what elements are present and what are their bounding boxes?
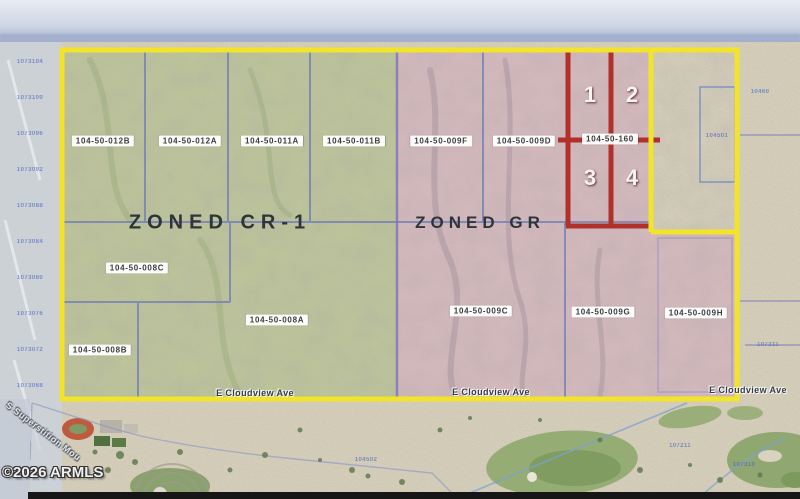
- map-number: 10460: [751, 89, 770, 95]
- map-number: 1073088: [17, 203, 43, 209]
- map-number: 107211: [669, 443, 691, 449]
- red-lot-number: 2: [626, 82, 638, 108]
- parcel-label: 104-50-009D: [493, 136, 555, 147]
- red-lot-number: 4: [626, 165, 638, 191]
- map-number: 104502: [355, 457, 377, 463]
- street-label-cloudview: E Cloudview Ave: [216, 388, 294, 398]
- street-label-cloudview: E Cloudview Ave: [709, 385, 787, 395]
- street-label-cloudview: E Cloudview Ave: [452, 387, 530, 397]
- zoning-map: ZONED CR-1 ZONED GR 104-50-012B 104-50-0…: [0, 0, 800, 499]
- map-number: 107310: [733, 462, 755, 468]
- map-canvas[interactable]: [0, 0, 800, 499]
- parcel-label: 104-50-009C: [450, 306, 512, 317]
- parcel-label: 104-50-009F: [410, 136, 472, 147]
- map-number: 1073092: [17, 167, 43, 173]
- zone-label-gr: ZONED GR: [415, 213, 545, 233]
- map-number: 1073072: [17, 347, 43, 353]
- map-number: 107311: [757, 342, 779, 348]
- top-map-blur-strip: [0, 0, 800, 42]
- parcel-label: 104-50-009H: [665, 308, 727, 319]
- armls-watermark: ©2026 ARMLS: [2, 464, 103, 481]
- map-number: 104501: [706, 133, 728, 139]
- parcel-label: 104-50-012B: [72, 136, 134, 147]
- map-number: 1073104: [17, 59, 43, 65]
- red-lot-number: 3: [584, 165, 596, 191]
- map-number: 1073080: [17, 275, 43, 281]
- bottom-black-bar: [28, 492, 800, 499]
- parcel-label: 104-50-011A: [241, 136, 303, 147]
- parcel-label: 104-50-160: [582, 134, 638, 145]
- parcel-label: 104-50-011B: [323, 136, 385, 147]
- parcel-label: 104-50-012A: [159, 136, 221, 147]
- blurred-road-line: [0, 34, 800, 38]
- map-number: 1073096: [17, 131, 43, 137]
- parcel-label: 104-50-008A: [246, 315, 308, 326]
- zone-label-cr1: ZONED CR-1: [129, 212, 311, 235]
- parcel-label: 104-50-008B: [69, 345, 131, 356]
- parcel-label: 104-50-009G: [572, 307, 635, 318]
- map-number: 1073076: [17, 311, 43, 317]
- map-number: 1073100: [17, 95, 43, 101]
- parcel-label: 104-50-008C: [106, 263, 168, 274]
- map-number: 1073084: [17, 239, 43, 245]
- red-lot-number: 1: [584, 82, 596, 108]
- map-number: 1073068: [17, 383, 43, 389]
